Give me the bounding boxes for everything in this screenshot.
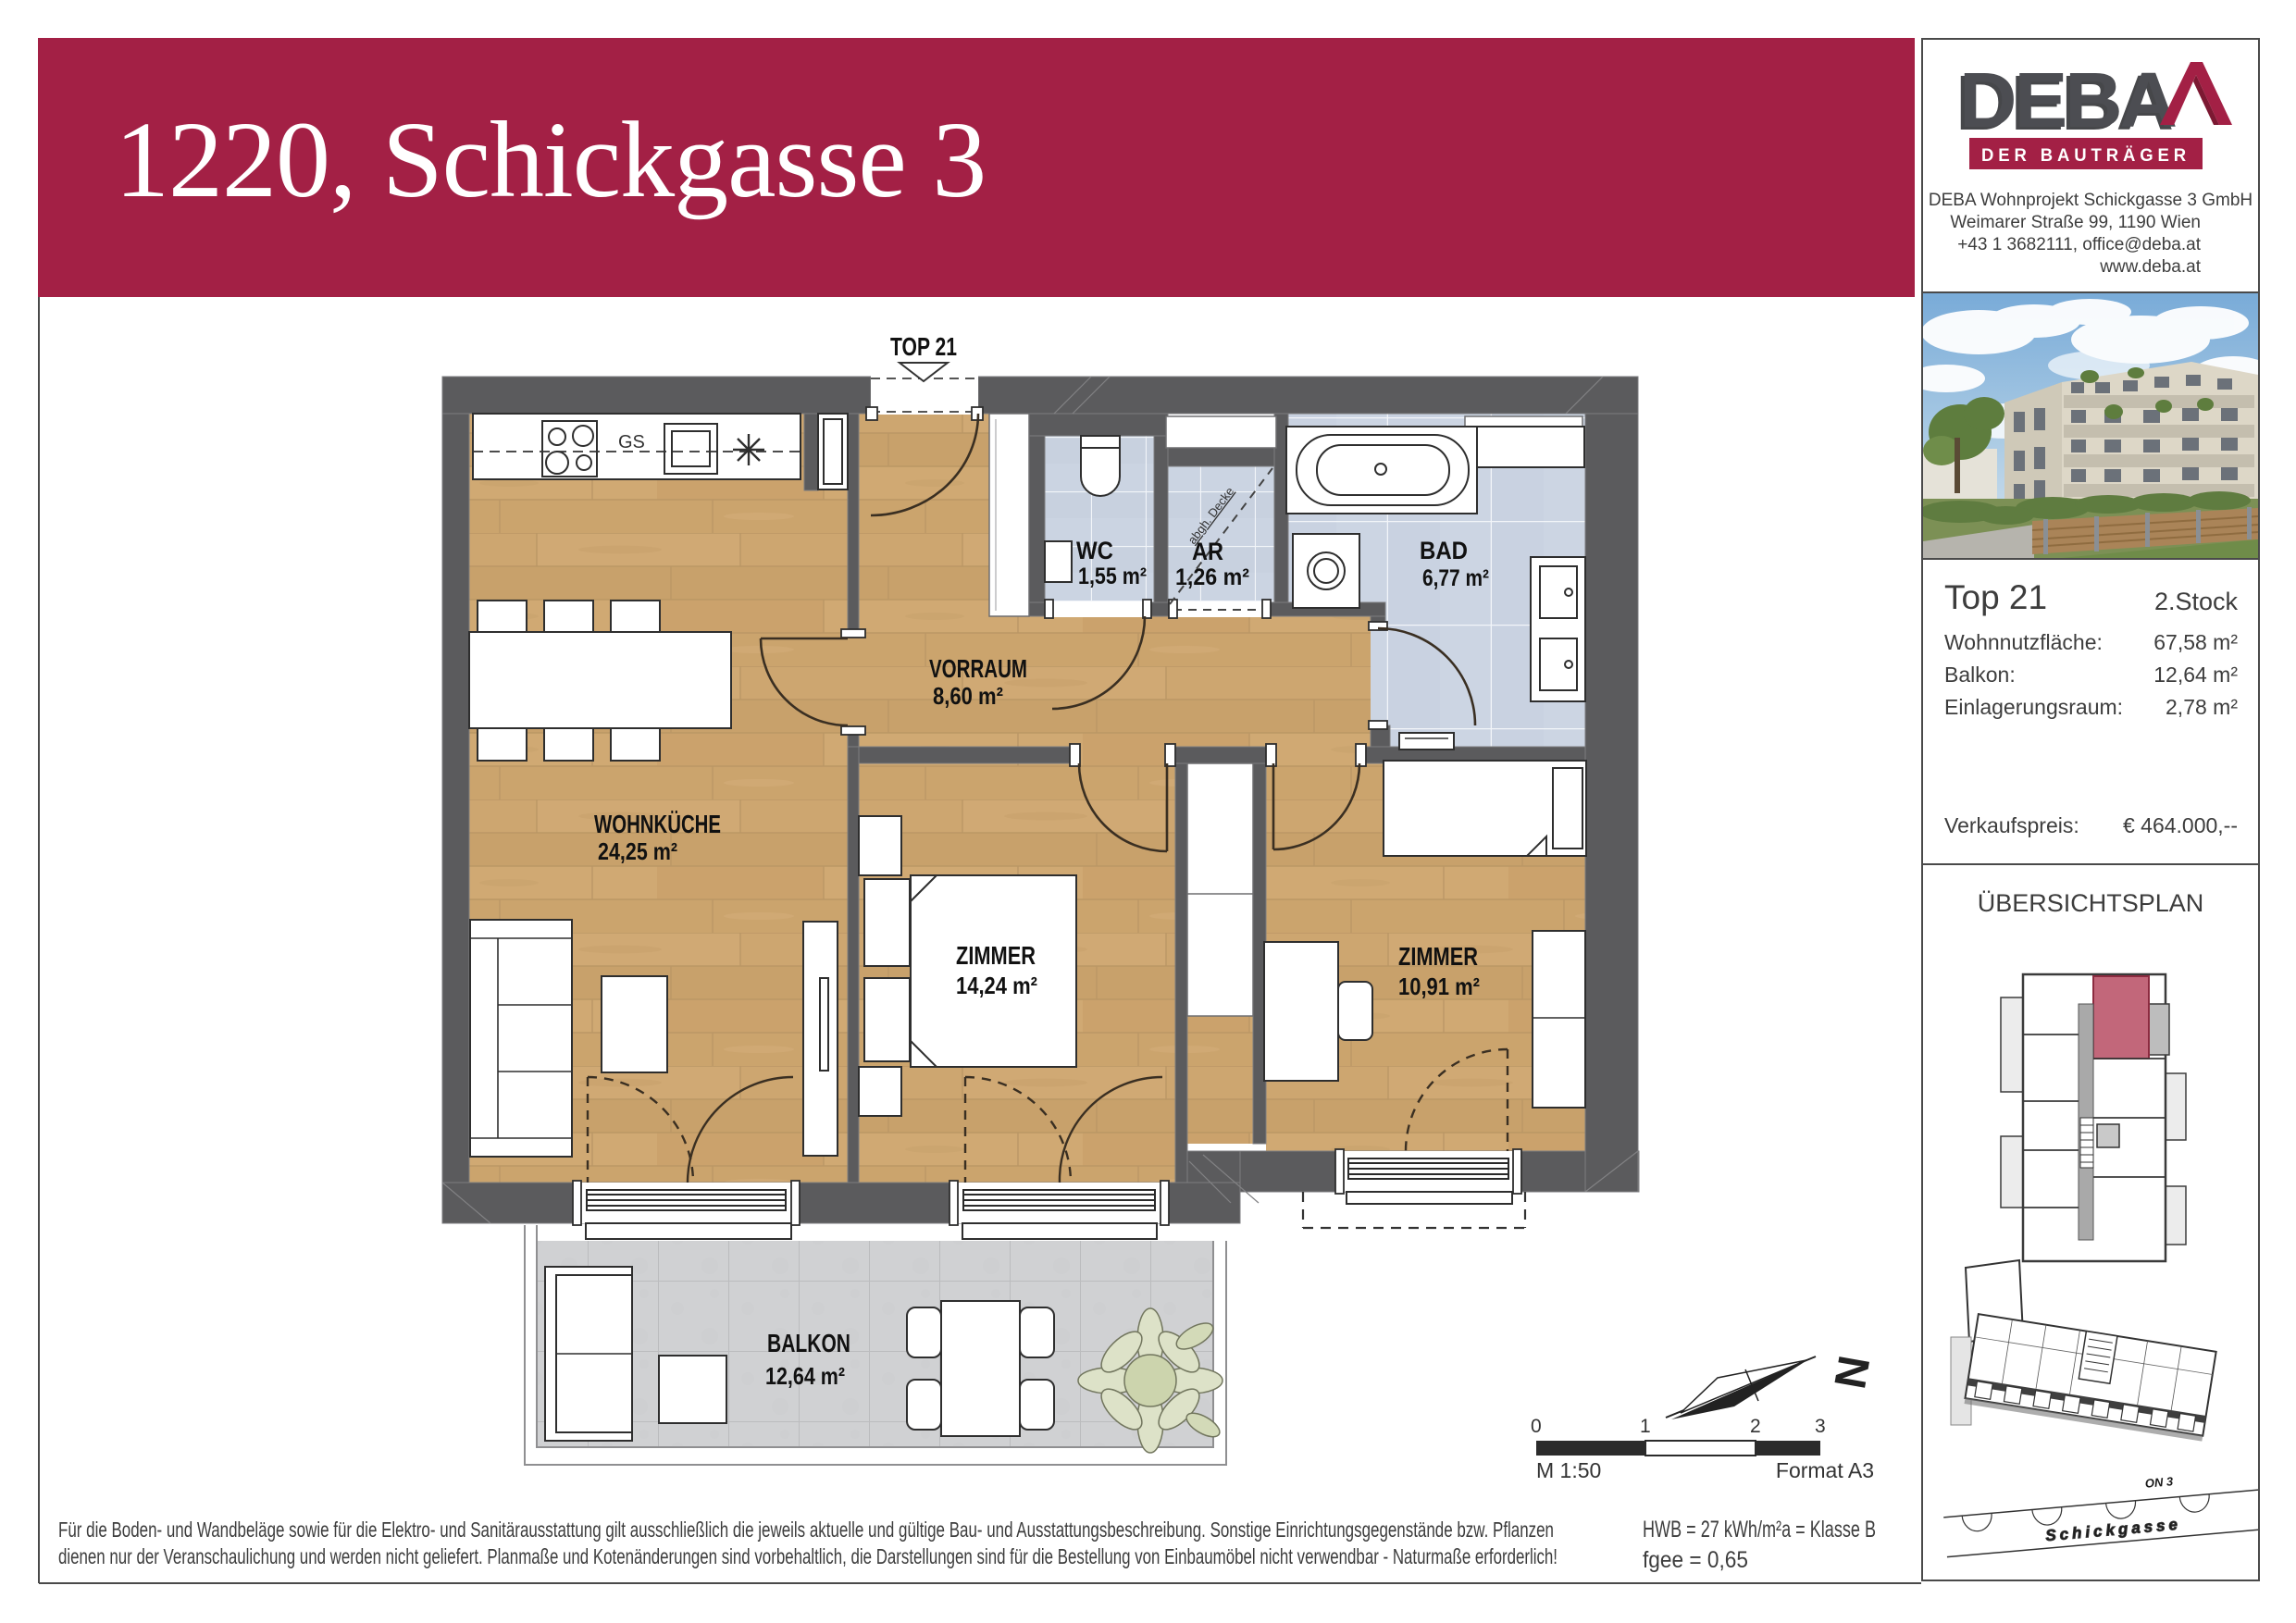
svg-text:AR: AR bbox=[1192, 538, 1223, 565]
svg-text:12,64 m²: 12,64 m² bbox=[765, 1362, 845, 1390]
svg-text:ZIMMER: ZIMMER bbox=[1398, 942, 1478, 971]
svg-text:BAD: BAD bbox=[1420, 537, 1468, 564]
svg-text:3: 3 bbox=[1815, 1416, 1826, 1437]
svg-text:WC: WC bbox=[1076, 537, 1113, 564]
svg-text:14,24 m²: 14,24 m² bbox=[956, 972, 1037, 999]
svg-text:24,25 m²: 24,25 m² bbox=[598, 837, 677, 865]
svg-text:8,60 m²: 8,60 m² bbox=[933, 682, 1003, 710]
svg-text:ZIMMER: ZIMMER bbox=[956, 941, 1036, 970]
svg-text:1,26 m²: 1,26 m² bbox=[1175, 564, 1249, 590]
svg-text:Für die Boden- und Wandbeläge: Für die Boden- und Wandbeläge sowie für … bbox=[58, 1518, 1554, 1542]
svg-text:WOHNKÜCHE: WOHNKÜCHE bbox=[594, 810, 721, 838]
svg-text:1,55 m²: 1,55 m² bbox=[1078, 564, 1147, 589]
svg-text:1: 1 bbox=[1640, 1416, 1651, 1437]
svg-text:BALKON: BALKON bbox=[767, 1329, 850, 1357]
svg-text:M 1:50: M 1:50 bbox=[1536, 1458, 1601, 1482]
svg-text:N: N bbox=[1824, 1352, 1878, 1392]
svg-text:TOP 21: TOP 21 bbox=[890, 332, 957, 361]
svg-text:VORRAUM: VORRAUM bbox=[929, 654, 1027, 683]
svg-text:6,77 m²: 6,77 m² bbox=[1422, 565, 1489, 591]
svg-text:0: 0 bbox=[1531, 1416, 1542, 1437]
svg-text:2: 2 bbox=[1750, 1416, 1761, 1437]
svg-text:HWB = 27 kWh/m²a = Klasse B: HWB = 27 kWh/m²a = Klasse B bbox=[1643, 1517, 1876, 1542]
svg-text:fgee = 0,65: fgee = 0,65 bbox=[1643, 1547, 1748, 1573]
svg-text:GS: GS bbox=[618, 432, 645, 452]
svg-text:10,91 m²: 10,91 m² bbox=[1398, 973, 1480, 1000]
svg-text:Format A3: Format A3 bbox=[1776, 1458, 1874, 1482]
svg-text:dienen nur der Veranschaulichu: dienen nur der Veranschaulichung und wer… bbox=[58, 1544, 1558, 1568]
